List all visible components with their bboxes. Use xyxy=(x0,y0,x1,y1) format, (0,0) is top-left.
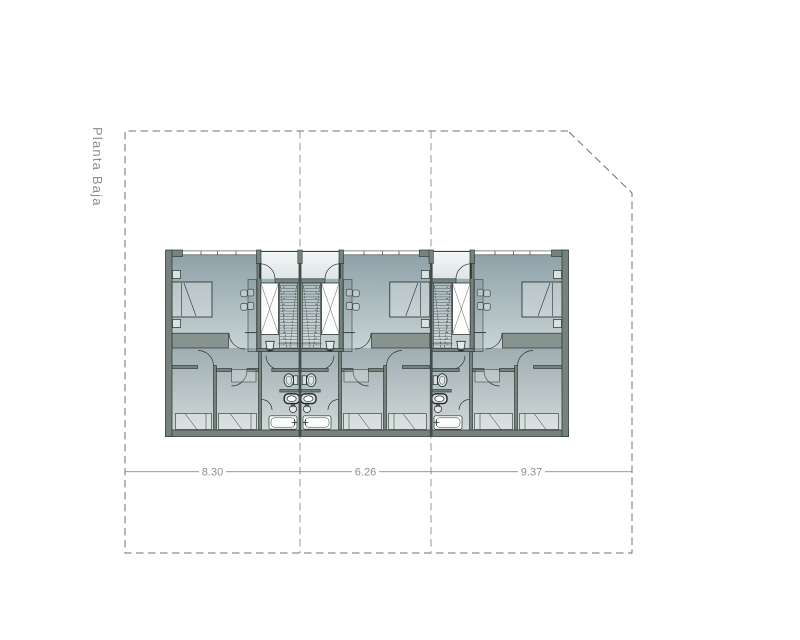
svg-text:6.26: 6.26 xyxy=(355,467,376,479)
svg-text:Planta Baja: Planta Baja xyxy=(90,127,105,207)
svg-text:8.30: 8.30 xyxy=(202,467,223,479)
svg-text:9.37: 9.37 xyxy=(521,467,542,479)
